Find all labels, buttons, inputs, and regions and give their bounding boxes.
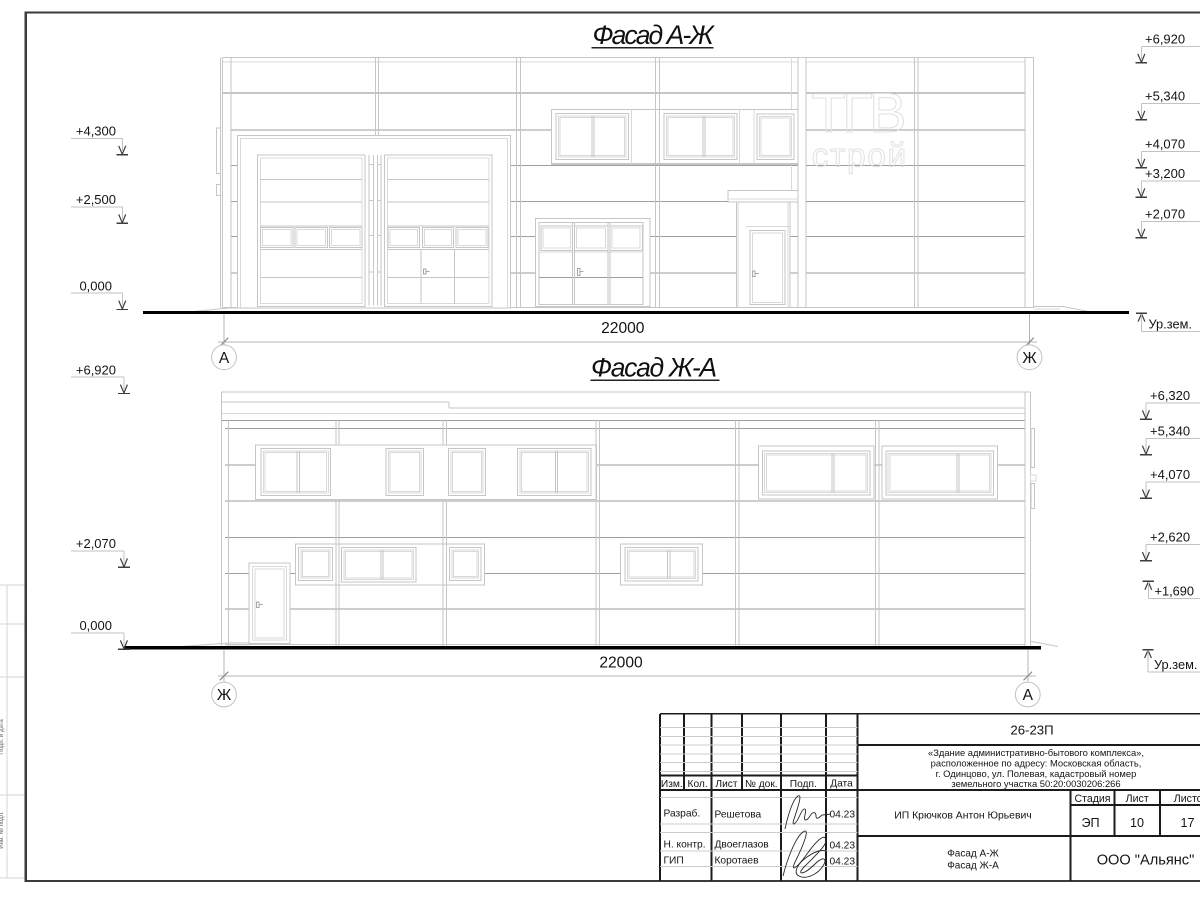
svg-text:Фасад Ж-А: Фасад Ж-А [947, 860, 999, 871]
svg-text:+4,300: +4,300 [76, 124, 116, 139]
svg-text:26-23П: 26-23П [1010, 723, 1053, 738]
svg-text:Инв. № подл.: Инв. № подл. [0, 811, 5, 849]
svg-text:Кол.: Кол. [688, 779, 708, 790]
svg-text:04.23: 04.23 [830, 810, 856, 821]
svg-text:Дата: Дата [830, 778, 853, 789]
svg-text:земельного участка 50:20:00302: земельного участка 50:20:0030206:266 [951, 778, 1120, 789]
svg-text:10: 10 [1130, 816, 1144, 830]
svg-text:ИП Крючков Антон Юрьевич: ИП Крючков Антон Юрьевич [894, 811, 1031, 822]
svg-text:ЭП: ЭП [1081, 816, 1099, 830]
svg-text:ООО "Альянс": ООО "Альянс" [1097, 853, 1195, 869]
svg-text:Ур.зем.: Ур.зем. [1154, 657, 1197, 672]
svg-text:Н. контр.: Н. контр. [664, 840, 706, 851]
svg-text:ГИП: ГИП [664, 856, 684, 867]
svg-text:Фасад А-Ж: Фасад А-Ж [593, 20, 716, 50]
svg-text:Двоеглазов: Двоеглазов [715, 840, 769, 851]
svg-text:+2,500: +2,500 [76, 192, 116, 207]
svg-text:17: 17 [1180, 816, 1194, 830]
svg-text:Лист: Лист [715, 779, 737, 790]
svg-text:+5,340: +5,340 [1150, 423, 1190, 438]
svg-text:Фасад А-Ж: Фасад А-Ж [947, 849, 999, 860]
svg-text:строй: строй [812, 137, 907, 174]
svg-text:04.23: 04.23 [830, 857, 856, 868]
svg-text:Разраб.: Разраб. [664, 808, 701, 820]
svg-text:Решетова: Решетова [715, 810, 762, 821]
svg-text:ТГВ: ТГВ [812, 81, 907, 144]
svg-text:0,000: 0,000 [79, 618, 112, 633]
svg-text:расположенное по адресу: Моско: расположенное по адресу: Московская обла… [931, 757, 1142, 768]
svg-text:+4,070: +4,070 [1145, 137, 1185, 152]
svg-text:+5,340: +5,340 [1145, 89, 1185, 104]
svg-text:+6,920: +6,920 [1145, 32, 1185, 47]
svg-text:+6,920: +6,920 [76, 362, 116, 377]
svg-text:+2,070: +2,070 [1145, 207, 1185, 222]
svg-text:Фасад Ж-А: Фасад Ж-А [591, 352, 717, 382]
svg-text:Лист: Лист [1126, 793, 1149, 805]
svg-text:Ж: Ж [1022, 350, 1037, 367]
svg-text:г. Одинцово, ул. Полевая, када: г. Одинцово, ул. Полевая, кадастровый но… [936, 768, 1137, 779]
svg-text:Листов: Листов [1174, 793, 1200, 805]
svg-text:+3,200: +3,200 [1145, 166, 1185, 181]
svg-text:Стадия: Стадия [1074, 793, 1110, 805]
svg-text:Коротаев: Коротаев [715, 856, 759, 867]
svg-text:04.23: 04.23 [830, 841, 856, 852]
svg-text:«Здание административно-бытово: «Здание административно-бытового комплек… [928, 747, 1144, 758]
svg-text:Подп. и дата: Подп. и дата [0, 719, 5, 755]
svg-text:+6,320: +6,320 [1150, 388, 1190, 403]
svg-text:Ур.зем.: Ур.зем. [1149, 316, 1192, 331]
svg-text:Подп.: Подп. [790, 779, 817, 790]
svg-text:0,000: 0,000 [79, 278, 112, 293]
svg-text:А: А [219, 350, 230, 367]
svg-text:А: А [1023, 687, 1034, 704]
svg-text:+2,620: +2,620 [1150, 530, 1190, 545]
svg-text:+2,070: +2,070 [76, 536, 116, 551]
svg-text:+4,070: +4,070 [1150, 467, 1190, 482]
svg-text:22000: 22000 [601, 320, 645, 337]
svg-text:Ж: Ж [217, 687, 232, 704]
svg-text:№ док.: № док. [745, 779, 778, 790]
svg-text:+1,690: +1,690 [1155, 583, 1195, 598]
svg-text:Изм.: Изм. [661, 779, 683, 790]
svg-text:22000: 22000 [599, 655, 643, 672]
